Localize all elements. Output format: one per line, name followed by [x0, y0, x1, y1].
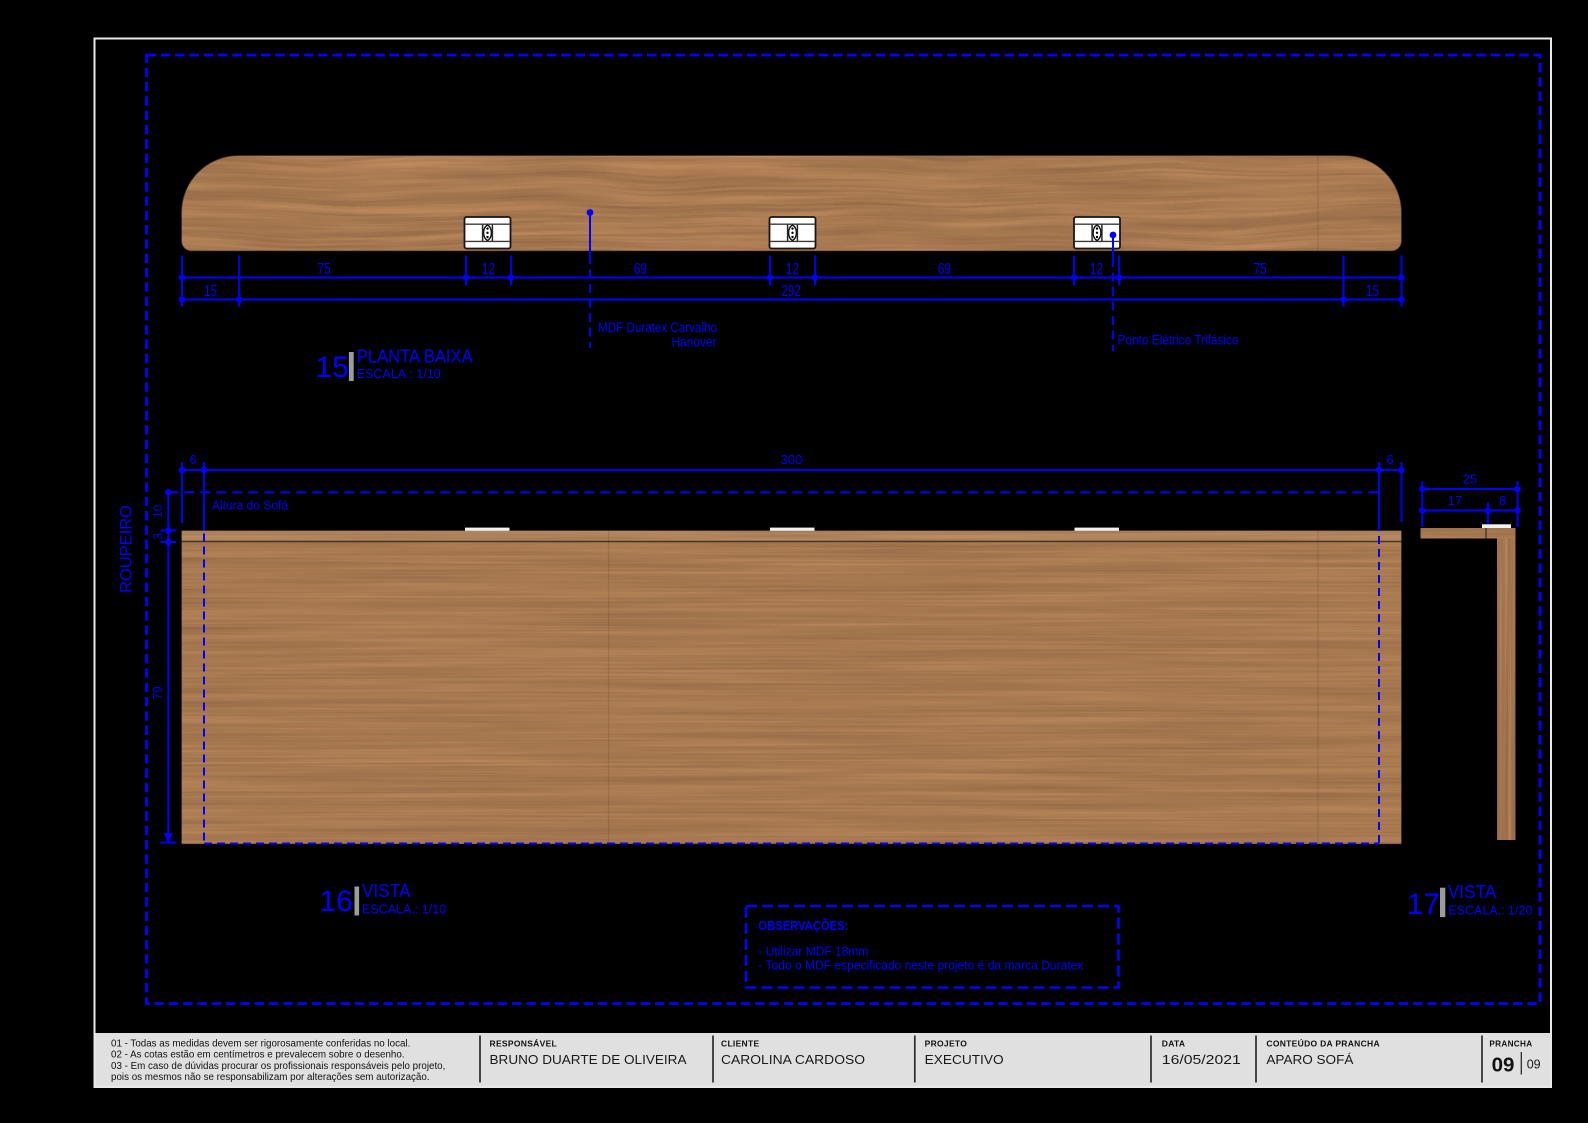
svg-text:CLIENTE: CLIENTE [721, 1039, 759, 1049]
svg-text:300: 300 [781, 452, 803, 467]
svg-text:PROJETO: PROJETO [925, 1039, 968, 1049]
svg-text:6: 6 [189, 452, 196, 467]
svg-text:OBSERVAÇÕES:: OBSERVAÇÕES: [758, 918, 848, 933]
svg-text:RESPONSÁVEL: RESPONSÁVEL [490, 1039, 558, 1049]
svg-text:75: 75 [1253, 261, 1266, 278]
svg-text:PLANTA BAIXA: PLANTA BAIXA [357, 347, 473, 367]
svg-text:16/05/2021: 16/05/2021 [1162, 1052, 1241, 1067]
svg-text:10: 10 [150, 505, 165, 518]
svg-text:APARO SOFÁ: APARO SOFÁ [1266, 1052, 1353, 1067]
svg-text:DATA: DATA [1162, 1039, 1186, 1049]
svg-text:PRANCHA: PRANCHA [1489, 1040, 1532, 1049]
svg-text:17: 17 [1407, 888, 1440, 921]
svg-text:8: 8 [1499, 493, 1506, 508]
svg-text:VISTA: VISTA [362, 881, 411, 901]
svg-text:12: 12 [786, 261, 799, 278]
svg-text:15: 15 [1366, 283, 1379, 300]
svg-text:09: 09 [1492, 1054, 1515, 1077]
svg-text:69: 69 [938, 261, 951, 278]
svg-text:01 - Todas as medidas devem se: 01 - Todas as medidas devem ser rigorosa… [111, 1039, 410, 1050]
svg-text:6: 6 [1386, 452, 1393, 467]
svg-text:02 - As cotas estão em centíme: 02 - As cotas estão em centímetros e pre… [111, 1050, 405, 1061]
svg-text:EXECUTIVO: EXECUTIVO [925, 1052, 1004, 1067]
svg-text:3: 3 [150, 533, 165, 540]
svg-text:69: 69 [634, 261, 647, 278]
svg-text:Hanover: Hanover [672, 335, 717, 350]
svg-text:15: 15 [204, 283, 217, 300]
svg-text:ESCALA.: 1/10: ESCALA.: 1/10 [362, 903, 446, 917]
svg-text:Ponto Elétrico Trifásico: Ponto Elétrico Trifásico [1118, 333, 1239, 348]
svg-text:292: 292 [781, 283, 800, 300]
svg-text:CAROLINA CARDOSO: CAROLINA CARDOSO [721, 1052, 865, 1067]
svg-text:ESCALA.: 1/20: ESCALA.: 1/20 [1448, 903, 1532, 917]
svg-text:25: 25 [1463, 472, 1477, 487]
svg-text:12: 12 [482, 261, 495, 278]
svg-text:ESCALA.: 1/10: ESCALA.: 1/10 [357, 367, 441, 381]
svg-text:CONTEÚDO DA PRANCHA: CONTEÚDO DA PRANCHA [1266, 1038, 1380, 1049]
svg-text:79: 79 [150, 686, 165, 700]
svg-text:15: 15 [316, 351, 349, 384]
svg-text:- Todo o MDF especificado nest: - Todo o MDF especificado neste projeto … [758, 958, 1083, 973]
svg-text:17: 17 [1448, 493, 1462, 508]
svg-text:pois os mesmos não se responsa: pois os mesmos não se responsabilizam po… [111, 1072, 430, 1083]
svg-text:09: 09 [1527, 1058, 1541, 1072]
svg-text:MDF Duratex Carvalho: MDF Duratex Carvalho [598, 320, 717, 335]
svg-text:ROUPEIRO: ROUPEIRO [118, 505, 136, 593]
svg-text:- Utilizar MDF 18mm: - Utilizar MDF 18mm [758, 944, 868, 959]
svg-text:03 - Em caso de dúvidas procur: 03 - Em caso de dúvidas procurar os prof… [111, 1061, 445, 1072]
svg-text:75: 75 [317, 261, 330, 278]
svg-text:12: 12 [1090, 261, 1103, 278]
svg-text:Altura do Sofá: Altura do Sofá [212, 498, 289, 513]
svg-text:16: 16 [320, 885, 353, 918]
svg-text:BRUNO DUARTE DE OLIVEIRA: BRUNO DUARTE DE OLIVEIRA [490, 1052, 687, 1067]
svg-text:VISTA: VISTA [1448, 882, 1497, 902]
